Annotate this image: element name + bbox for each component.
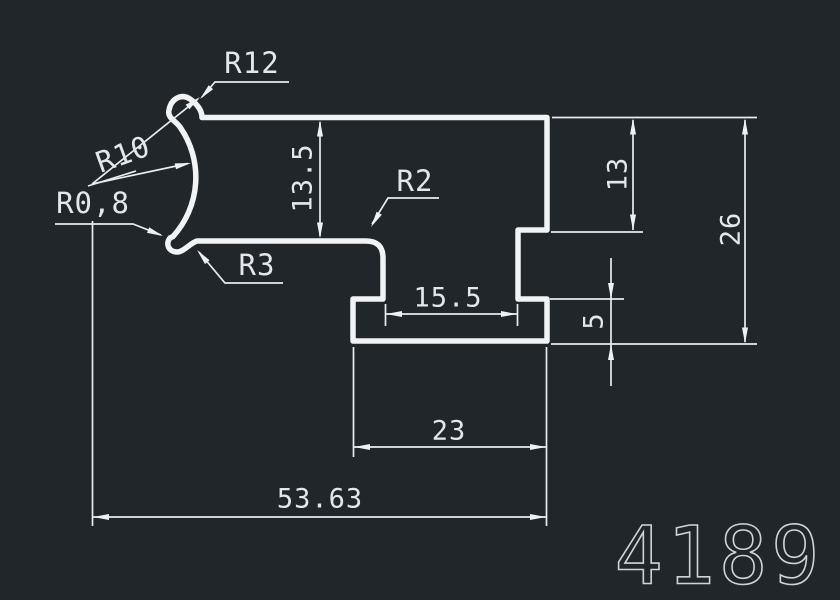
dim-text-15.5: 15.5 xyxy=(413,282,482,313)
arrow-53.63-right xyxy=(530,514,546,520)
arrow-13-up xyxy=(630,119,636,135)
label-r3: R3 xyxy=(239,248,276,282)
arrow-r2 xyxy=(371,212,382,227)
arrow-23-right xyxy=(530,444,546,450)
arrow-15.5-left xyxy=(386,311,402,317)
drawing-svg: R12 R10 R0,8 R3 R2 13.5 13 26 5 15.5 23 … xyxy=(0,0,840,600)
dim-text-13.5: 13.5 xyxy=(287,143,318,212)
label-r0_8: R0,8 xyxy=(56,186,130,220)
arrow-5-lower xyxy=(608,344,614,360)
arrow-15.5-right xyxy=(501,311,517,317)
arrow-13-down xyxy=(630,215,636,231)
label-r2: R2 xyxy=(397,164,434,198)
arrow-53.63-left xyxy=(93,514,109,520)
dim-text-5: 5 xyxy=(578,312,609,329)
arrow-23-left xyxy=(354,444,370,450)
dim-text-53.63: 53.63 xyxy=(277,483,363,514)
arrow-13.5-down xyxy=(317,223,323,239)
arrow-26-up xyxy=(742,119,748,135)
arrow-5-upper xyxy=(608,283,614,299)
cad-drawing-canvas: R12 R10 R0,8 R3 R2 13.5 13 26 5 15.5 23 … xyxy=(0,0,840,600)
dim-text-23: 23 xyxy=(432,415,467,446)
arrow-r0_8 xyxy=(147,227,163,236)
leader-r2 xyxy=(372,198,439,224)
leader-r12 xyxy=(202,82,289,97)
dim-text-13: 13 xyxy=(602,157,633,192)
arrow-r10-arc xyxy=(175,163,191,169)
leader-r0_8 xyxy=(55,224,161,235)
arrow-26-down xyxy=(742,328,748,344)
arrow-13.5-up xyxy=(317,121,323,137)
dim-text-26: 26 xyxy=(715,212,746,247)
label-r12: R12 xyxy=(224,46,279,80)
profile-outline xyxy=(168,97,547,341)
part-number: 4189 xyxy=(615,509,824,600)
